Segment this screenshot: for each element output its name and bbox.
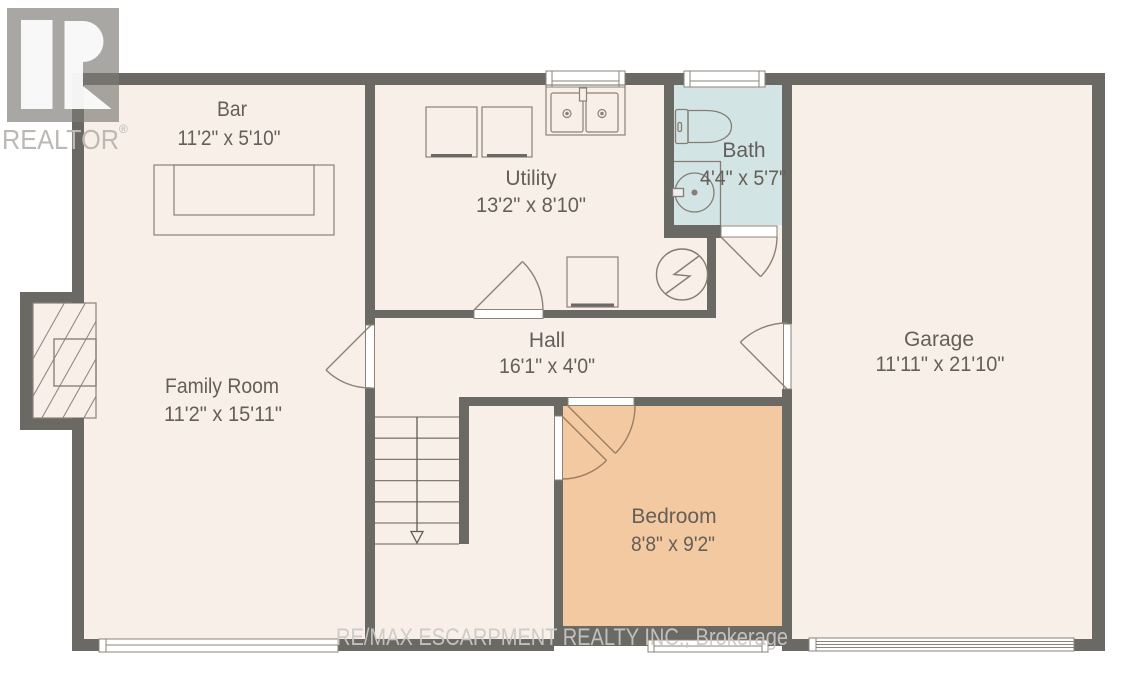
svg-text:11'2" x 5'10": 11'2" x 5'10": [178, 127, 281, 150]
svg-text:Garage: Garage: [904, 328, 974, 351]
svg-text:13'2" x 8'10": 13'2" x 8'10": [476, 194, 586, 217]
svg-text:REALTOR: REALTOR: [2, 124, 119, 155]
svg-text:Family Room: Family Room: [165, 375, 279, 398]
svg-text:11'11" x 21'10": 11'11" x 21'10": [876, 353, 1005, 376]
svg-text:RE/MAX ESCARPMENT REALTY INC.,: RE/MAX ESCARPMENT REALTY INC., Brokerage: [336, 624, 788, 651]
svg-text:16'1" x 4'0": 16'1" x 4'0": [499, 355, 595, 378]
svg-text:®: ®: [119, 122, 128, 136]
svg-text:11'2" x 15'11": 11'2" x 15'11": [164, 403, 282, 426]
svg-text:Hall: Hall: [529, 329, 565, 352]
svg-text:Bedroom: Bedroom: [631, 505, 716, 528]
svg-text:4'4" x 5'7": 4'4" x 5'7": [700, 167, 786, 190]
svg-text:Utility: Utility: [505, 167, 557, 190]
svg-text:Bar: Bar: [217, 98, 247, 121]
svg-text:8'8" x 9'2": 8'8" x 9'2": [631, 533, 715, 556]
svg-text:Bath: Bath: [722, 139, 765, 162]
